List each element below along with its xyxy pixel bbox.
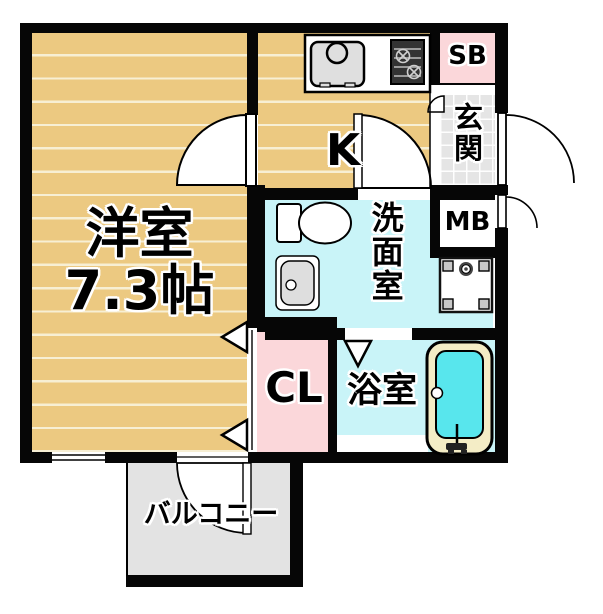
faucet-foot: [448, 450, 454, 454]
floor-plan: 洋室 7.3帖 K SB 玄関 MB 洗面室 CL 浴室 バルコニー: [0, 0, 603, 614]
door-leaf-front: [498, 113, 506, 185]
faucet-foot: [461, 450, 467, 454]
label-entrance: 玄関: [451, 102, 481, 164]
pan-pad: [479, 299, 489, 309]
gas-stove: [391, 40, 424, 84]
vanity-drain: [286, 280, 296, 290]
bathroom-door-mark: [345, 341, 371, 366]
pan-drain-center: [464, 267, 468, 271]
door-leaf-meterbox: [498, 195, 506, 228]
label-bathroom: 浴室: [339, 373, 425, 410]
door-arc-western: [177, 115, 247, 185]
label-meter-box: MB: [440, 209, 495, 236]
sink-tab-2: [345, 83, 355, 87]
door-leaf-western: [246, 114, 256, 186]
label-shoe-box: SB: [440, 43, 495, 70]
door-arc-front: [506, 115, 574, 183]
closet-door-triangle-1: [222, 322, 247, 352]
kitchen-faucet: [327, 43, 347, 63]
western-room-size: 7.3帖: [32, 263, 247, 320]
bathtub-faucet-base: [446, 443, 467, 450]
bathtub-handle: [432, 388, 443, 399]
pan-pad: [479, 261, 489, 271]
toilet-tank: [277, 204, 301, 242]
label-closet: CL: [261, 366, 327, 410]
label-balcony: バルコニー: [126, 501, 296, 529]
label-kitchen: K: [320, 128, 366, 174]
door-arc-meterbox: [506, 197, 537, 228]
label-western-room: 洋室 7.3帖: [32, 206, 247, 319]
closet-door-triangle-2: [222, 420, 247, 450]
toilet-bowl: [299, 203, 351, 244]
label-washroom: 洗面室: [368, 201, 402, 303]
pan-pad: [443, 261, 453, 271]
pan-pad: [443, 299, 453, 309]
western-room-name: 洋室: [32, 206, 247, 263]
sink-tab-1: [320, 83, 330, 87]
door-arc-washroom: [358, 115, 431, 188]
